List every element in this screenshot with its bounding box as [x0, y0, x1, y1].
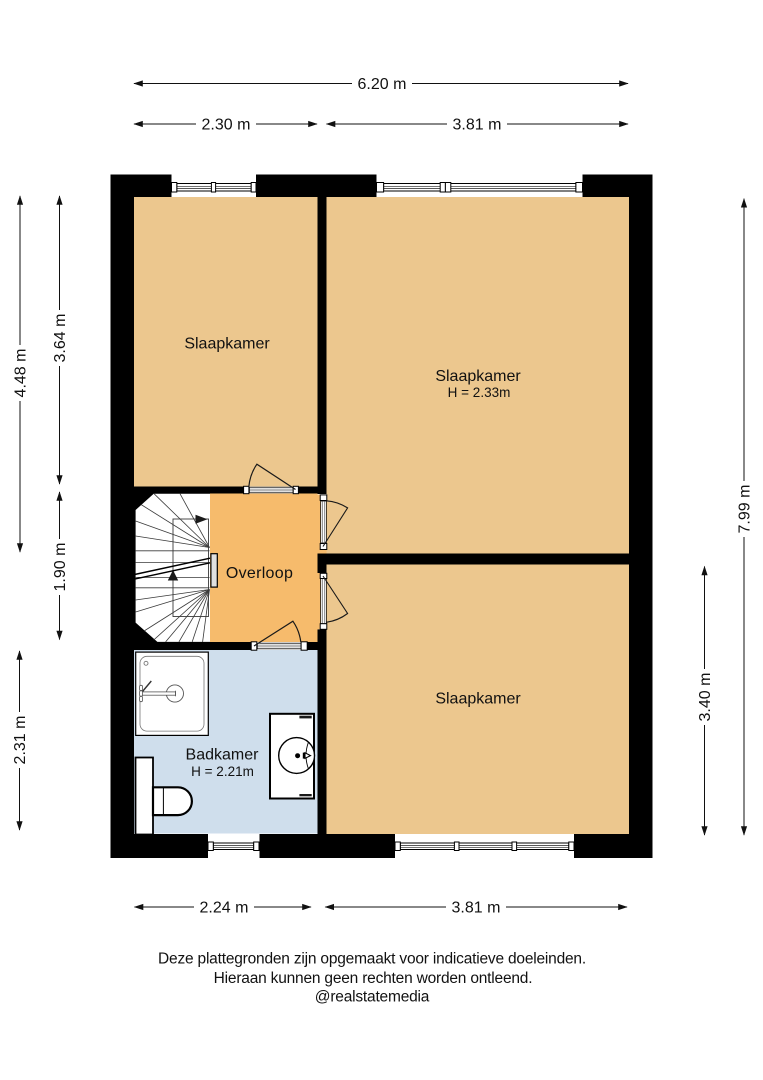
svg-text:Badkamer: Badkamer: [186, 747, 260, 764]
svg-text:Slaapkamer: Slaapkamer: [435, 691, 521, 708]
svg-text:3.81 m: 3.81 m: [453, 117, 502, 134]
svg-text:Deze plattegronden zijn opgema: Deze plattegronden zijn opgemaakt voor i…: [158, 951, 586, 968]
svg-text:3.81 m: 3.81 m: [452, 900, 501, 917]
svg-text:@realstatemedia: @realstatemedia: [315, 989, 430, 1006]
svg-text:H = 2.33m: H = 2.33m: [448, 385, 511, 400]
svg-text:7.99 m: 7.99 m: [737, 485, 754, 534]
svg-text:Overloop: Overloop: [226, 565, 293, 582]
svg-text:H = 2.21m: H = 2.21m: [191, 764, 254, 779]
svg-text:4.48 m: 4.48 m: [13, 349, 30, 398]
svg-text:Slaapkamer: Slaapkamer: [435, 368, 521, 385]
svg-text:2.31 m: 2.31 m: [12, 716, 29, 765]
svg-text:2.30 m: 2.30 m: [202, 117, 251, 134]
svg-text:6.20 m: 6.20 m: [358, 76, 407, 93]
svg-text:3.40 m: 3.40 m: [697, 673, 714, 722]
svg-text:3.64 m: 3.64 m: [52, 314, 69, 363]
svg-text:2.24 m: 2.24 m: [200, 900, 249, 917]
svg-text:1.90 m: 1.90 m: [52, 543, 69, 592]
svg-text:Hieraan kunnen geen rechten wo: Hieraan kunnen geen rechten worden ontle…: [214, 970, 533, 987]
svg-text:Slaapkamer: Slaapkamer: [184, 336, 270, 353]
